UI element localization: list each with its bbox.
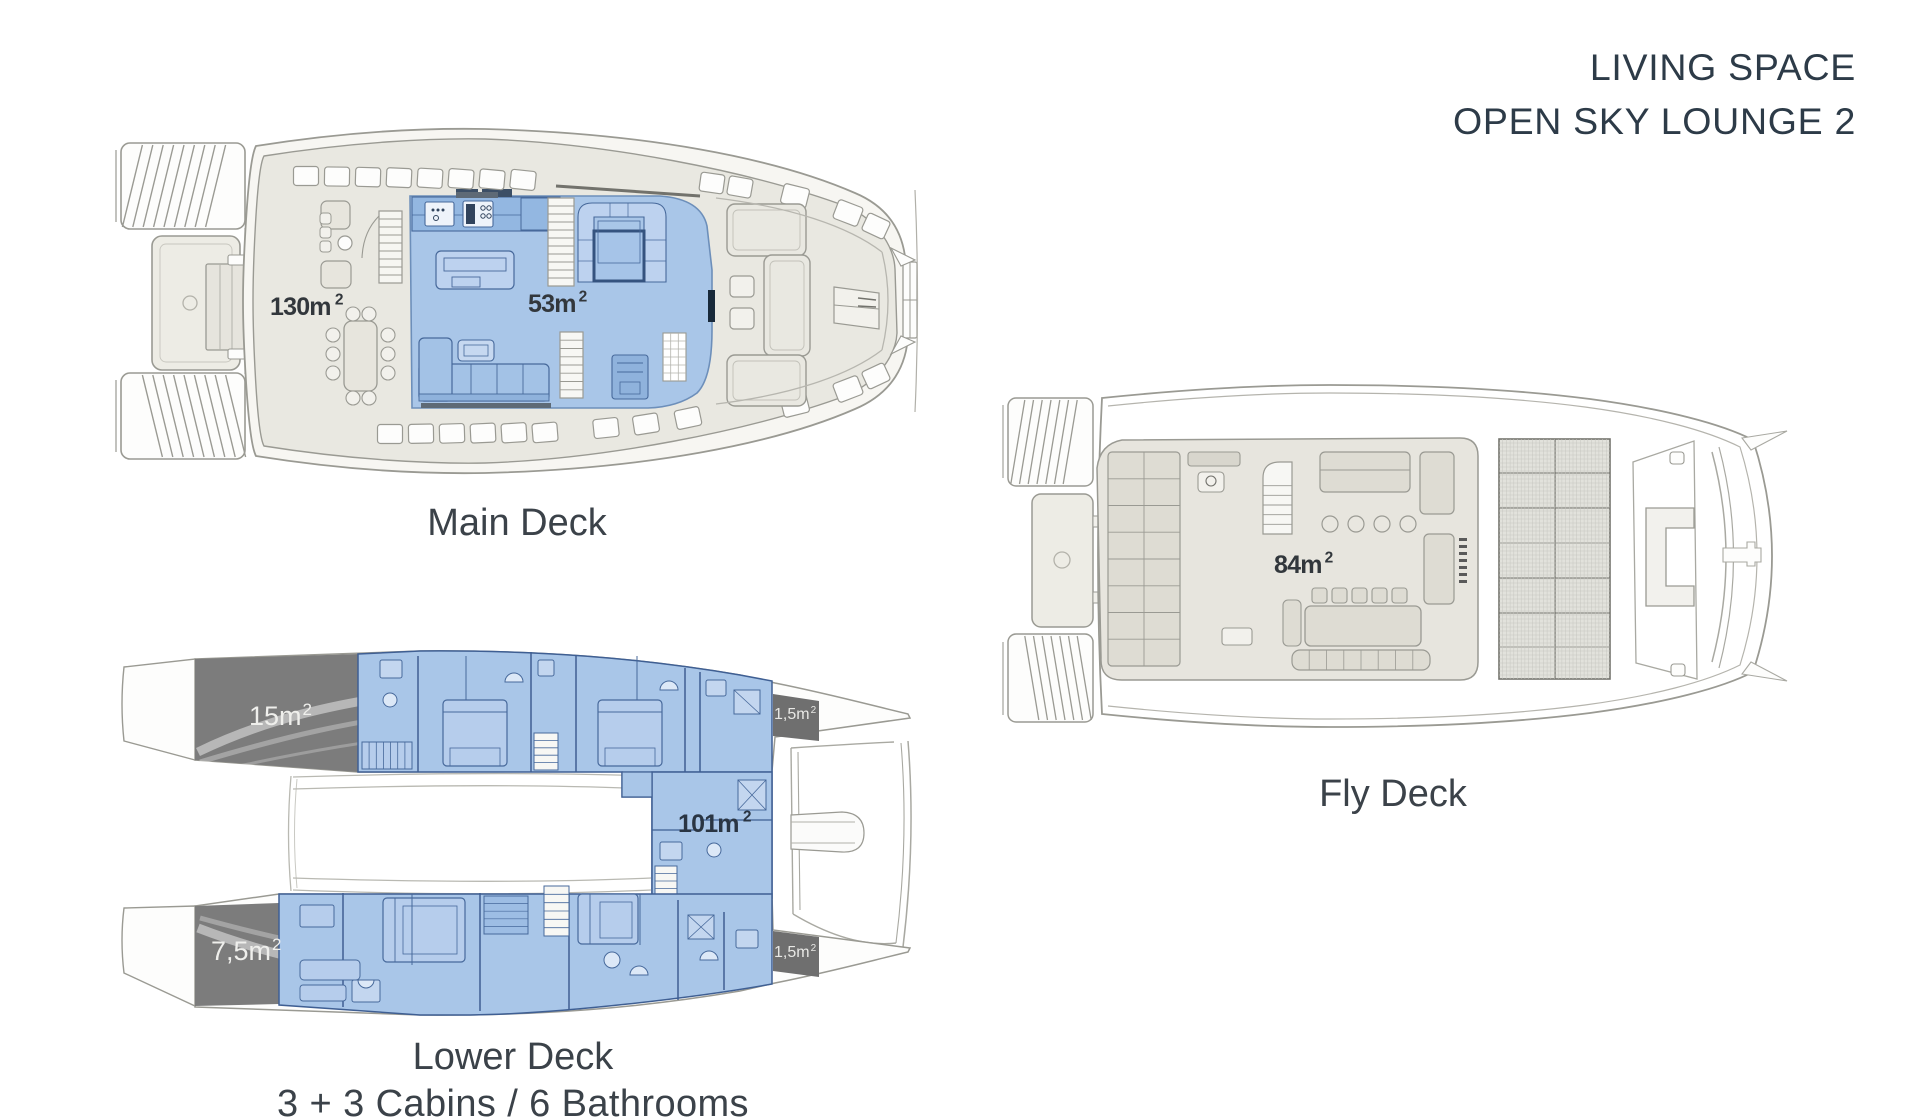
svg-text:2: 2 — [811, 705, 817, 716]
svg-text:2: 2 — [743, 809, 752, 826]
svg-text:101m: 101m — [678, 810, 739, 838]
svg-text:2: 2 — [579, 289, 588, 306]
svg-text:OPEN SKY LOUNGE 2: OPEN SKY LOUNGE 2 — [1453, 100, 1856, 142]
svg-text:1,5m: 1,5m — [774, 944, 810, 961]
svg-text:1,5m: 1,5m — [774, 706, 810, 723]
svg-text:Lower Deck: Lower Deck — [413, 1036, 615, 1078]
svg-text:Main Deck: Main Deck — [427, 502, 607, 544]
svg-text:Fly Deck: Fly Deck — [1319, 773, 1468, 815]
svg-text:53m: 53m — [528, 290, 576, 318]
svg-text:2: 2 — [811, 943, 817, 954]
svg-text:84m: 84m — [1274, 551, 1322, 579]
svg-text:15m: 15m — [249, 701, 302, 731]
svg-text:2: 2 — [272, 935, 281, 954]
svg-text:7,5m: 7,5m — [211, 936, 271, 966]
svg-text:LIVING SPACE: LIVING SPACE — [1590, 46, 1856, 88]
svg-text:2: 2 — [303, 700, 312, 719]
svg-text:130m: 130m — [270, 293, 331, 321]
svg-text:2: 2 — [1325, 550, 1334, 567]
svg-text:2: 2 — [335, 292, 344, 309]
svg-text:3 + 3 Cabins / 6 Bathrooms: 3 + 3 Cabins / 6 Bathrooms — [277, 1083, 749, 1120]
